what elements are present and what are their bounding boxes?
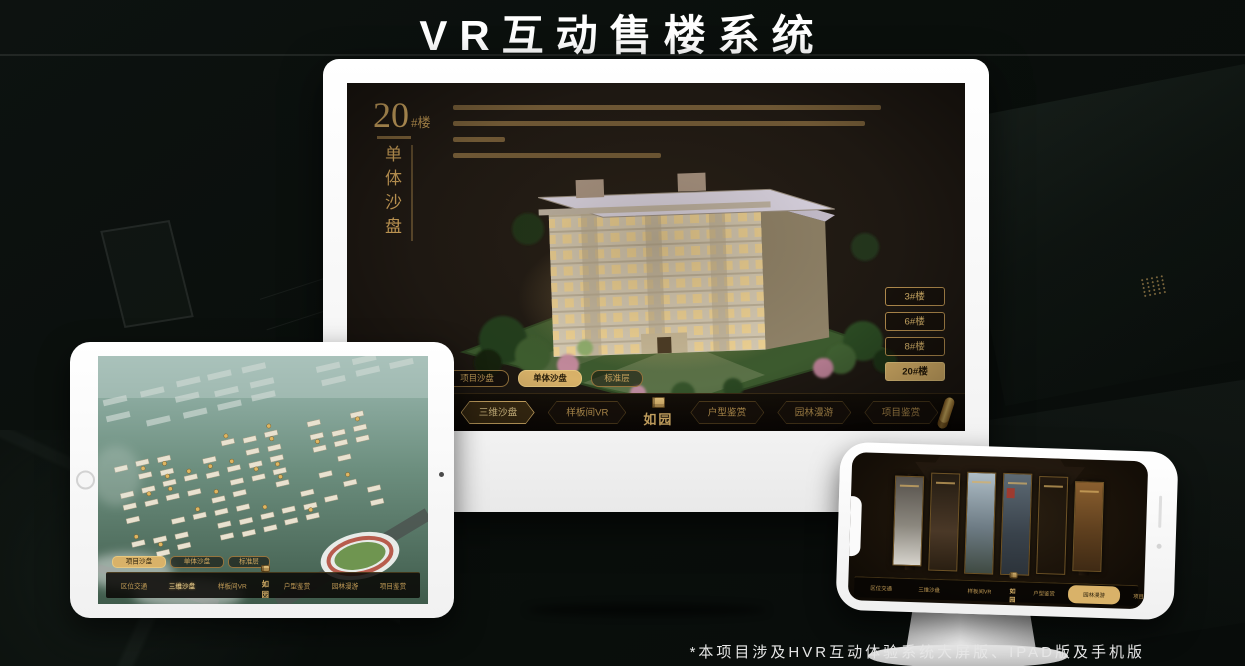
gallery-panel[interactable] bbox=[1000, 473, 1032, 576]
brand-logo[interactable]: 如园 bbox=[643, 397, 673, 428]
floor-button-6[interactable]: 6#楼 bbox=[885, 312, 945, 331]
nav-item-garden-roam[interactable]: 园林漫游 bbox=[777, 401, 851, 424]
tablet-screen: 项目沙盘 单体沙盘 标准层 区位交通 三维沙盘 样板间VR 如园 户型鉴赏 园林… bbox=[98, 356, 428, 604]
nav-item-model-room-vr[interactable]: 样板间VR bbox=[548, 401, 627, 424]
vr-gallery-panels bbox=[892, 469, 1104, 578]
gold-scroll-icon[interactable] bbox=[936, 396, 955, 430]
gold-seal-icon bbox=[261, 565, 270, 572]
nav-item-3d-sandtable[interactable]: 三维沙盘 bbox=[158, 577, 206, 595]
building-hero-title: 20#楼 单体沙盘 bbox=[373, 97, 431, 257]
floor-button-group: 3#楼 6#楼 8#楼 20#楼 bbox=[885, 287, 945, 381]
nav-item-project-gallery[interactable]: 项目鉴赏 bbox=[864, 401, 938, 424]
nav-item-garden-roam[interactable]: 园林漫游 bbox=[1068, 585, 1121, 605]
phone-camera-dot bbox=[1157, 544, 1162, 549]
tab-standard-floor[interactable]: 标准层 bbox=[591, 370, 643, 387]
nav-item-location-traffic[interactable]: 区位交通 bbox=[110, 577, 158, 595]
nav-item-3d-sandtable[interactable]: 三维沙盘 bbox=[461, 401, 535, 424]
hero-subtitle-vertical: 单体沙盘 bbox=[379, 145, 404, 257]
background-picture-frame bbox=[100, 220, 194, 328]
tablet-camera-dot bbox=[439, 472, 444, 477]
tab-project-sandtable[interactable]: 项目沙盘 bbox=[112, 556, 166, 568]
floor-button-8[interactable]: 8#楼 bbox=[885, 337, 945, 356]
building-number-suffix: #楼 bbox=[411, 115, 431, 130]
nav-item-floorplan-gallery[interactable]: 户型鉴赏 bbox=[1020, 583, 1069, 602]
nav-item-floorplan-gallery[interactable]: 户型鉴赏 bbox=[690, 401, 764, 424]
tablet-device: 项目沙盘 单体沙盘 标准层 区位交通 三维沙盘 样板间VR 如园 户型鉴赏 园林… bbox=[70, 342, 454, 618]
tab-single-sandtable[interactable]: 单体沙盘 bbox=[170, 556, 224, 568]
hero-decorative-rule bbox=[411, 145, 413, 241]
nav-item-project-gallery[interactable]: 项目鉴赏 bbox=[1119, 587, 1148, 606]
nav-item-floorplan-gallery[interactable]: 户型鉴赏 bbox=[273, 577, 321, 595]
phone-nav-bar: 区位交通 三维沙盘 样板间VR 如园 户型鉴赏 园林漫游 项目鉴赏 bbox=[854, 576, 1139, 606]
building-number: 20 bbox=[373, 95, 409, 135]
gallery-panel[interactable] bbox=[964, 472, 996, 575]
view-tab-group: 项目沙盘 单体沙盘 标准层 bbox=[445, 370, 643, 387]
tab-project-sandtable[interactable]: 项目沙盘 bbox=[445, 370, 509, 387]
tab-single-sandtable[interactable]: 单体沙盘 bbox=[518, 370, 582, 387]
nav-item-location-traffic[interactable]: 区位交通 bbox=[857, 578, 906, 597]
phone-speaker-slot bbox=[1158, 496, 1162, 528]
gold-seal-icon bbox=[1009, 572, 1017, 578]
tablet-nav-bar: 区位交通 三维沙盘 样板间VR 如园 户型鉴赏 园林漫游 项目鉴赏 bbox=[106, 572, 420, 598]
background-faded-screenshot bbox=[950, 64, 1245, 406]
tablet-home-button[interactable] bbox=[76, 471, 95, 490]
nav-item-project-gallery[interactable]: 项目鉴赏 bbox=[369, 577, 417, 595]
footnote-text: *本项目涉及HVR互动体验系统大屏版、IPAD版及手机版 bbox=[690, 641, 1145, 662]
gold-seal-icon bbox=[652, 397, 665, 408]
nav-item-model-room-vr[interactable]: 样板间VR bbox=[206, 577, 259, 595]
tablet-view-tab-group: 项目沙盘 单体沙盘 标准层 bbox=[112, 556, 270, 568]
floor-button-3[interactable]: 3#楼 bbox=[885, 287, 945, 306]
phone-device: 区位交通 三维沙盘 样板间VR 如园 户型鉴赏 园林漫游 项目鉴赏 bbox=[835, 442, 1178, 621]
nav-item-3d-sandtable[interactable]: 三维沙盘 bbox=[905, 580, 954, 599]
floor-button-20[interactable]: 20#楼 bbox=[885, 362, 945, 381]
nav-item-model-room-vr[interactable]: 样板间VR bbox=[953, 581, 1006, 601]
nav-item-garden-roam[interactable]: 园林漫游 bbox=[321, 577, 369, 595]
gallery-panel[interactable] bbox=[892, 475, 924, 566]
brand-logo[interactable]: 如园 bbox=[1005, 572, 1020, 609]
gallery-panel[interactable] bbox=[1036, 476, 1068, 575]
page-title: VR互动售楼系统 bbox=[0, 2, 1245, 63]
monitor-stand-shadow bbox=[527, 604, 767, 616]
brand-logo[interactable]: 如园 bbox=[259, 565, 273, 604]
phone-screen: 区位交通 三维沙盘 样板间VR 如园 户型鉴赏 园林漫游 项目鉴赏 bbox=[848, 452, 1149, 609]
page: VR互动售楼系统 20#楼 单体沙盘 bbox=[0, 0, 1245, 666]
phone-notch bbox=[849, 496, 862, 556]
hero-decorative-bar bbox=[377, 136, 411, 139]
gallery-panel[interactable] bbox=[928, 473, 960, 572]
gallery-panel[interactable] bbox=[1072, 481, 1104, 572]
